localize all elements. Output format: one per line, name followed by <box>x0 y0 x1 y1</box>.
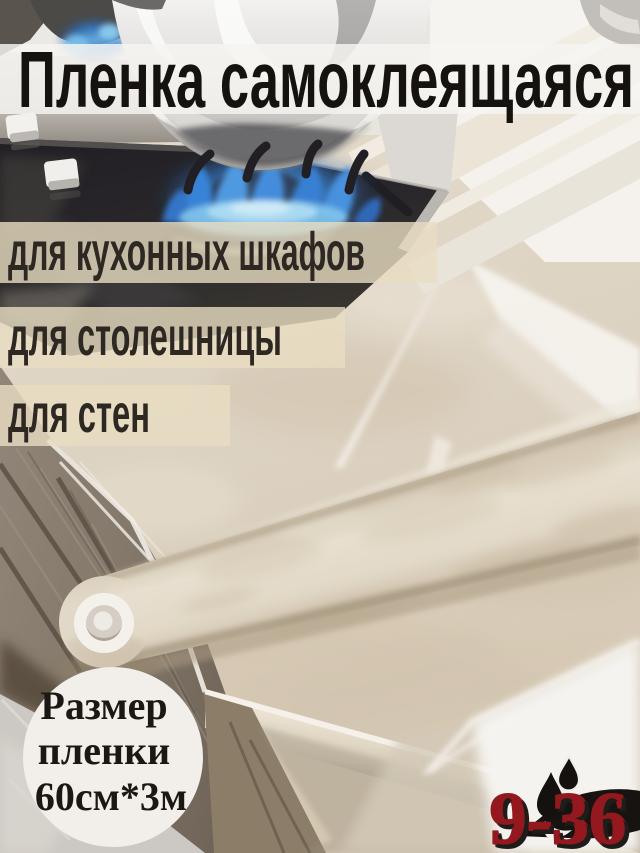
svg-text:для кухонных шкафов: для кухонных шкафов <box>8 222 365 282</box>
svg-text:Пленка самоклеящаяся: Пленка самоклеящаяся <box>18 35 634 124</box>
svg-text:60см*3м: 60см*3м <box>35 774 187 819</box>
svg-text:9-36: 9-36 <box>490 779 627 853</box>
svg-text:пленки: пленки <box>38 728 170 773</box>
svg-text:для столешницы: для столешницы <box>8 307 282 367</box>
svg-text:для стен: для стен <box>8 384 150 444</box>
svg-text:Размер: Размер <box>40 683 167 728</box>
